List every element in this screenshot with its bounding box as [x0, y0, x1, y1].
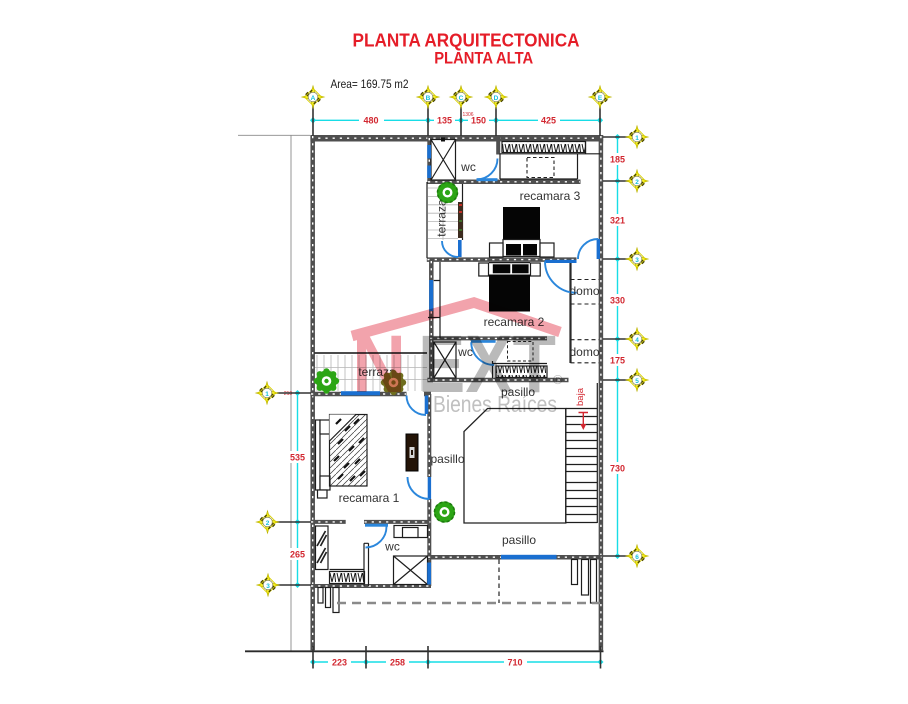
- svg-text:C: C: [459, 95, 464, 102]
- svg-text:730: 730: [610, 464, 625, 474]
- svg-text:6: 6: [635, 554, 639, 561]
- svg-text:265: 265: [290, 550, 305, 560]
- svg-text:PLANTA ARQUITECTONICA: PLANTA ARQUITECTONICA: [353, 30, 580, 50]
- svg-text:2: 2: [635, 179, 639, 186]
- svg-text:4: 4: [635, 337, 639, 344]
- svg-text:1: 1: [265, 391, 269, 398]
- svg-text:3: 3: [635, 257, 639, 264]
- svg-text:Area= 169.75 m2: Area= 169.75 m2: [331, 77, 409, 91]
- svg-text:1306: 1306: [462, 112, 473, 118]
- svg-text:®: ®: [553, 372, 563, 387]
- svg-text:terraza: terraza: [435, 199, 449, 237]
- svg-text:pasillo: pasillo: [430, 452, 464, 466]
- svg-text:710: 710: [507, 658, 522, 668]
- svg-text:PLANTA ALTA: PLANTA ALTA: [434, 49, 533, 68]
- svg-text:D: D: [494, 95, 499, 102]
- svg-text:domo: domo: [569, 345, 599, 359]
- svg-text:A: A: [311, 95, 316, 102]
- svg-text:5: 5: [635, 378, 639, 385]
- svg-text:425: 425: [541, 116, 556, 126]
- svg-text:330: 330: [610, 296, 625, 306]
- svg-text:2: 2: [266, 520, 270, 527]
- svg-text:B: B: [426, 95, 431, 102]
- svg-text:258: 258: [390, 658, 405, 668]
- svg-text:535: 535: [290, 453, 305, 463]
- svg-text:recamara 1: recamara 1: [339, 491, 400, 505]
- svg-text:185: 185: [610, 155, 625, 165]
- svg-text:135: 135: [437, 116, 452, 126]
- svg-text:3: 3: [266, 583, 270, 590]
- svg-text:recamara 3: recamara 3: [520, 189, 581, 203]
- svg-text:E: E: [598, 95, 603, 102]
- svg-text:175: 175: [610, 356, 625, 366]
- svg-text:Bienes Raíces: Bienes Raíces: [433, 391, 557, 417]
- svg-text:domo: domo: [569, 284, 599, 298]
- svg-text:1: 1: [635, 135, 639, 142]
- svg-text:baja: baja: [575, 387, 586, 406]
- svg-text:223: 223: [332, 658, 347, 668]
- svg-text:wc: wc: [460, 160, 476, 174]
- svg-text:480: 480: [363, 116, 378, 126]
- svg-text:210: 210: [284, 391, 293, 397]
- svg-text:wc: wc: [384, 540, 400, 554]
- svg-text:pasillo: pasillo: [502, 533, 536, 547]
- svg-text:321: 321: [610, 216, 625, 226]
